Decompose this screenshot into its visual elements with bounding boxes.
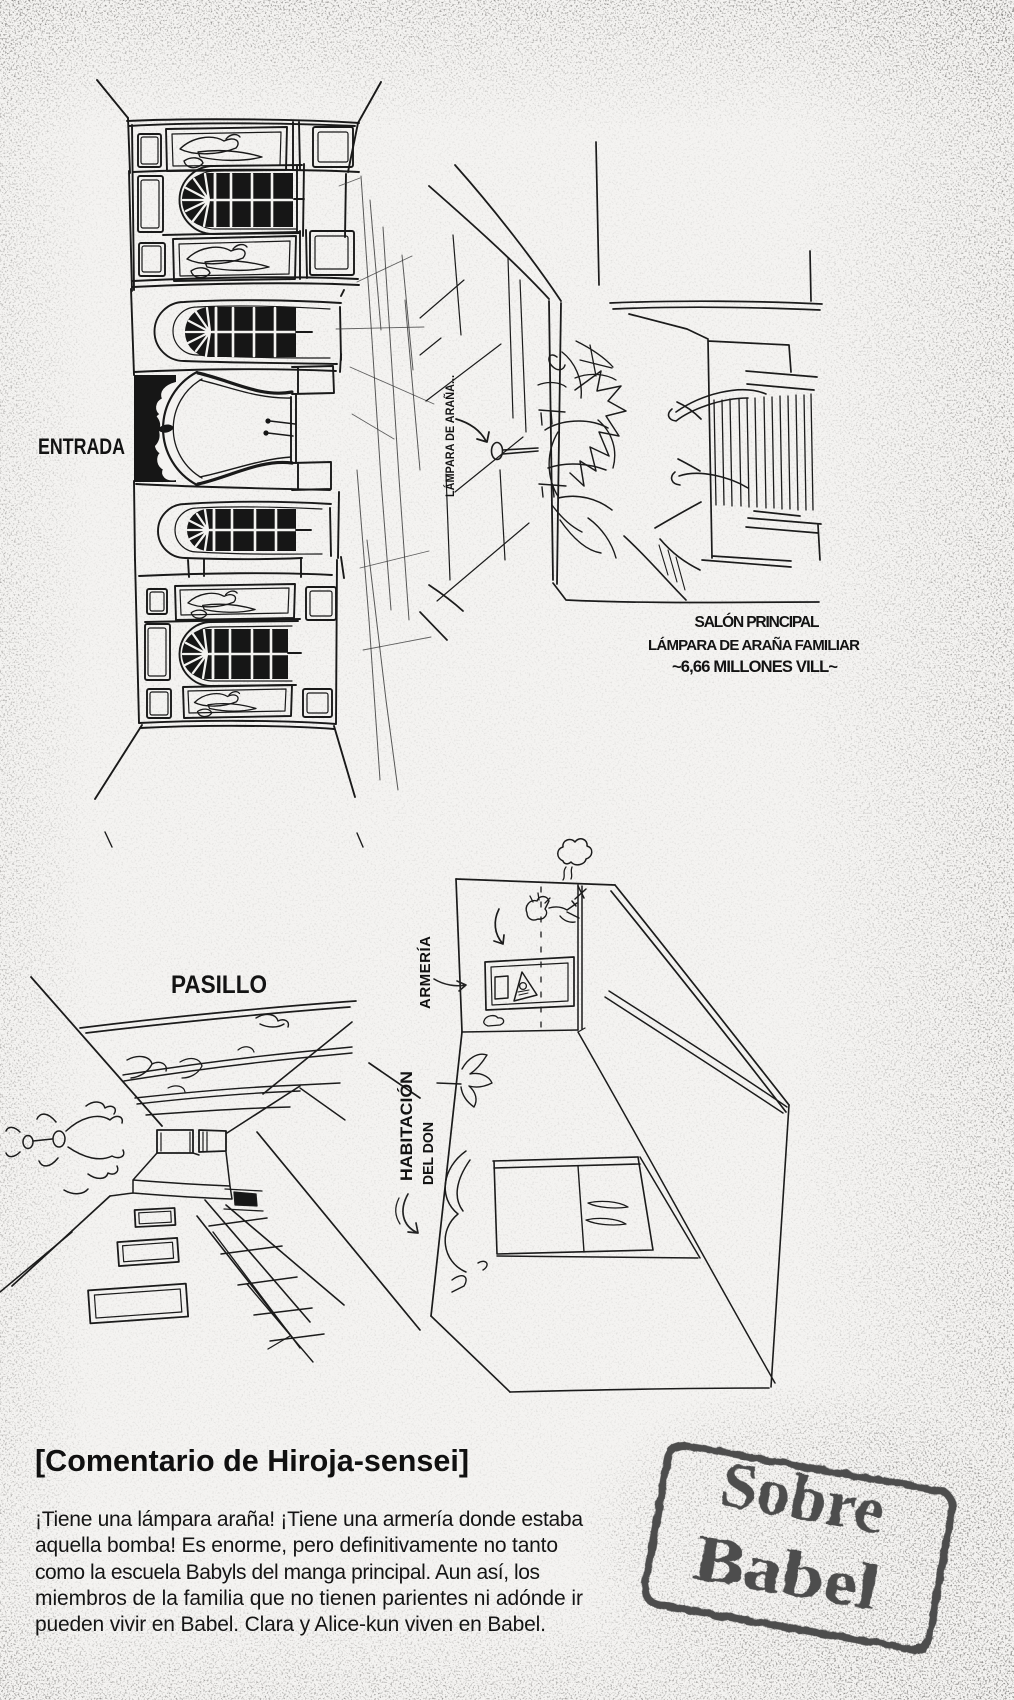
svg-text:como la escuela Babyls del man: como la escuela Babyls del manga princip… bbox=[35, 1561, 540, 1584]
svg-text:PASILLO: PASILLO bbox=[171, 971, 267, 999]
svg-text:HABITACIÓN: HABITACIÓN bbox=[397, 1071, 416, 1181]
svg-text:[Comentario de Hiroja-sensei]: [Comentario de Hiroja-sensei] bbox=[35, 1443, 469, 1478]
svg-text:LÁMPARA DE ARAÑA...: LÁMPARA DE ARAÑA... bbox=[442, 375, 457, 497]
svg-text:miembros de la familia que no: miembros de la familia que no tienen par… bbox=[35, 1587, 583, 1610]
svg-text:aquella bomba! Es enorme, pero: aquella bomba! Es enorme, pero definitiv… bbox=[35, 1534, 558, 1557]
svg-text:~6,66 MILLONES VILL~: ~6,66 MILLONES VILL~ bbox=[672, 658, 838, 676]
svg-text:pueden vivir en Babel. Clara y: pueden vivir en Babel. Clara y Alice-kun… bbox=[35, 1613, 546, 1636]
svg-text:ENTRADA: ENTRADA bbox=[38, 434, 125, 459]
svg-text:LÁMPARA DE ARAÑA FAMILIAR: LÁMPARA DE ARAÑA FAMILIAR bbox=[648, 636, 860, 654]
svg-text:DEL DON: DEL DON bbox=[420, 1122, 437, 1185]
svg-text:ARMERÍA: ARMERÍA bbox=[417, 936, 434, 1010]
svg-text:¡Tiene una lámpara araña! ¡Tie: ¡Tiene una lámpara araña! ¡Tiene una arm… bbox=[35, 1508, 583, 1531]
svg-text:SALÓN PRINCIPAL: SALÓN PRINCIPAL bbox=[695, 613, 820, 631]
